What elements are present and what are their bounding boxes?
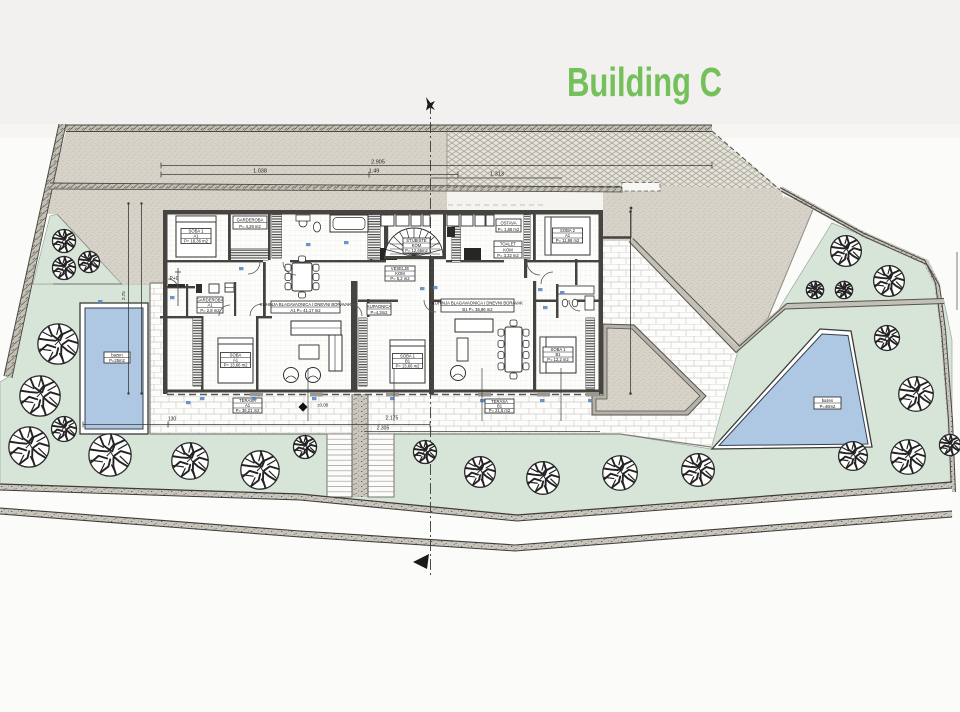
svg-text:P= 1,65 m2: P= 1,65 m2 <box>498 227 520 232</box>
svg-text:2.905: 2.905 <box>371 160 385 166</box>
svg-text:KUHINJA BLAGAVAONICA I DNEVNI: KUHINJA BLAGAVAONICA I DNEVNI BORAVAK <box>432 300 523 305</box>
svg-text:P= 12,2 m2: P= 12,2 m2 <box>547 357 569 362</box>
svg-text:1.49: 1.49 <box>369 169 380 175</box>
svg-text:P=4,3m2: P=4,3m2 <box>371 310 389 315</box>
svg-text:P= 5,2 m2: P= 5,2 m2 <box>390 276 410 281</box>
svg-text:P= 36,21 m2: P= 36,21 m2 <box>236 408 261 413</box>
svg-text:bazen: bazen <box>822 398 834 403</box>
svg-text:TOALET: TOALET <box>500 242 517 247</box>
svg-text:P=48m2: P=48m2 <box>820 404 836 409</box>
svg-text:P= 12,65m2: P= 12,65m2 <box>405 248 428 253</box>
svg-text:2.175: 2.175 <box>386 416 399 422</box>
svg-text:P=25m2: P=25m2 <box>109 358 125 363</box>
svg-text:B1 P= 35,86 m2: B1 P= 35,86 m2 <box>462 307 493 312</box>
svg-text:KUHINJA BLAGAVAONICA I DNEVNI: KUHINJA BLAGAVAONICA I DNEVNI BORAVAK <box>260 302 351 307</box>
svg-text:P= 11,86 m2: P= 11,86 m2 <box>556 238 580 243</box>
svg-text:OSTAVA: OSTAVA <box>500 220 516 225</box>
svg-text:GARDEROBA: GARDEROBA <box>197 297 224 302</box>
svg-text:Building C: Building C <box>567 59 722 105</box>
svg-text:P= 21,5 m2: P= 21,5 m2 <box>489 408 511 413</box>
svg-text:KOM: KOM <box>503 247 513 252</box>
svg-text:P= 2,8 m2: P= 2,8 m2 <box>200 308 220 313</box>
svg-text:P= 13,66 m2: P= 13,66 m2 <box>224 363 249 368</box>
svg-text:2.75: 2.75 <box>121 291 126 300</box>
svg-text:±0,00: ±0,00 <box>317 403 329 408</box>
svg-text:130: 130 <box>168 417 177 423</box>
svg-text:GARDEROBA: GARDEROBA <box>237 217 264 222</box>
svg-text:KUPAONICA: KUPAONICA <box>367 304 392 309</box>
svg-text:2.305: 2.305 <box>377 426 390 432</box>
svg-text:A1: A1 <box>207 303 213 308</box>
svg-text:P= 13,66 m2: P= 13,66 m2 <box>396 364 421 369</box>
svg-text:1.038: 1.038 <box>253 169 267 175</box>
svg-text:P= 16,36 m2: P= 16,36 m2 <box>184 239 209 244</box>
svg-text:A1 P= 41,17 m2: A1 P= 41,17 m2 <box>290 308 321 313</box>
svg-text:bazen: bazen <box>111 353 123 358</box>
svg-text:P= 3,32 m2: P= 3,32 m2 <box>497 253 519 258</box>
svg-text:1.313: 1.313 <box>490 172 504 178</box>
svg-text:P= 4,28 m2: P= 4,28 m2 <box>239 224 261 229</box>
